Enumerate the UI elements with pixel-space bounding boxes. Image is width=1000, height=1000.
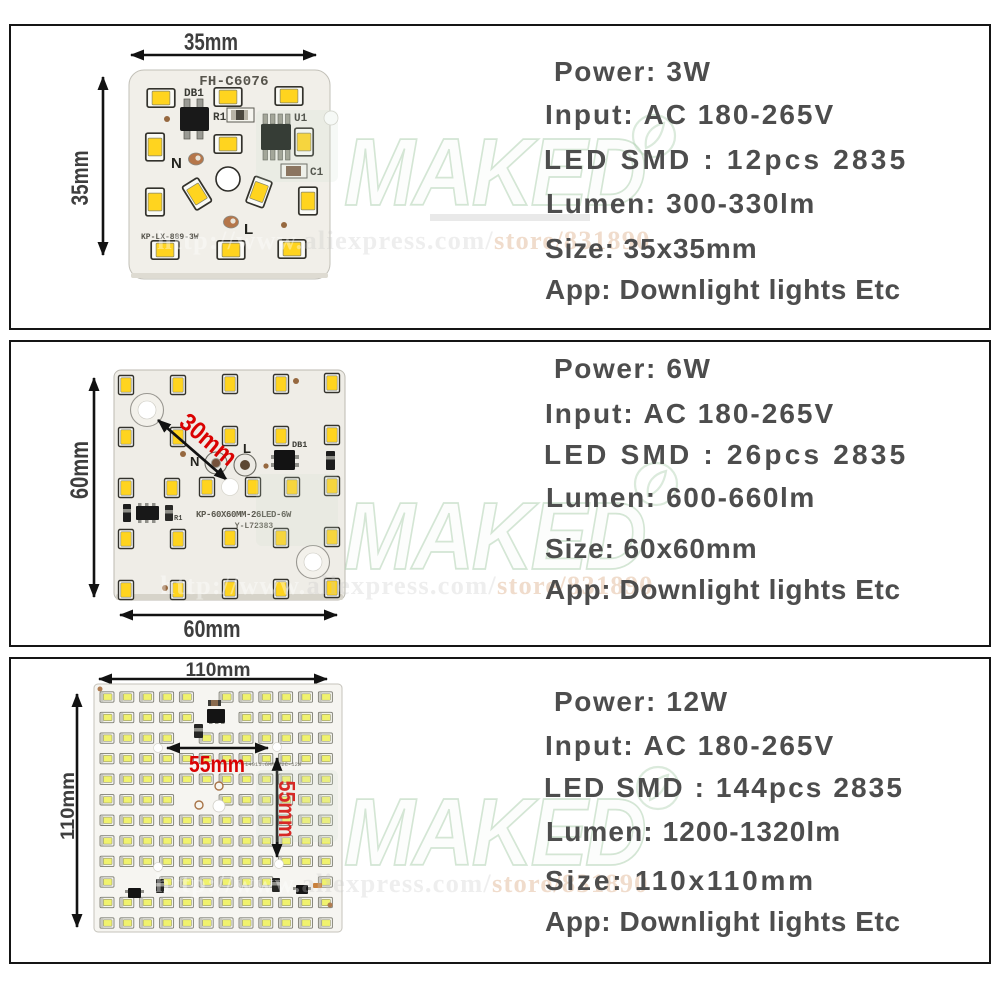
svg-text:55mm: 55mm — [189, 751, 245, 777]
svg-text:60mm: 60mm — [184, 616, 241, 643]
svg-text:110mm: 110mm — [58, 772, 79, 840]
svg-text:DB1: DB1 — [184, 88, 204, 100]
svg-text:60mm: 60mm — [66, 441, 94, 499]
svg-text:R1: R1 — [174, 515, 182, 523]
svg-text:35mm: 35mm — [184, 29, 238, 56]
svg-text:N: N — [171, 155, 182, 172]
svg-text:R1: R1 — [213, 112, 227, 124]
svg-text:35mm: 35mm — [67, 151, 94, 206]
svg-text:DB1: DB1 — [292, 440, 307, 450]
svg-text:14011.6MM-P2C-12W: 14011.6MM-P2C-12W — [245, 761, 302, 768]
